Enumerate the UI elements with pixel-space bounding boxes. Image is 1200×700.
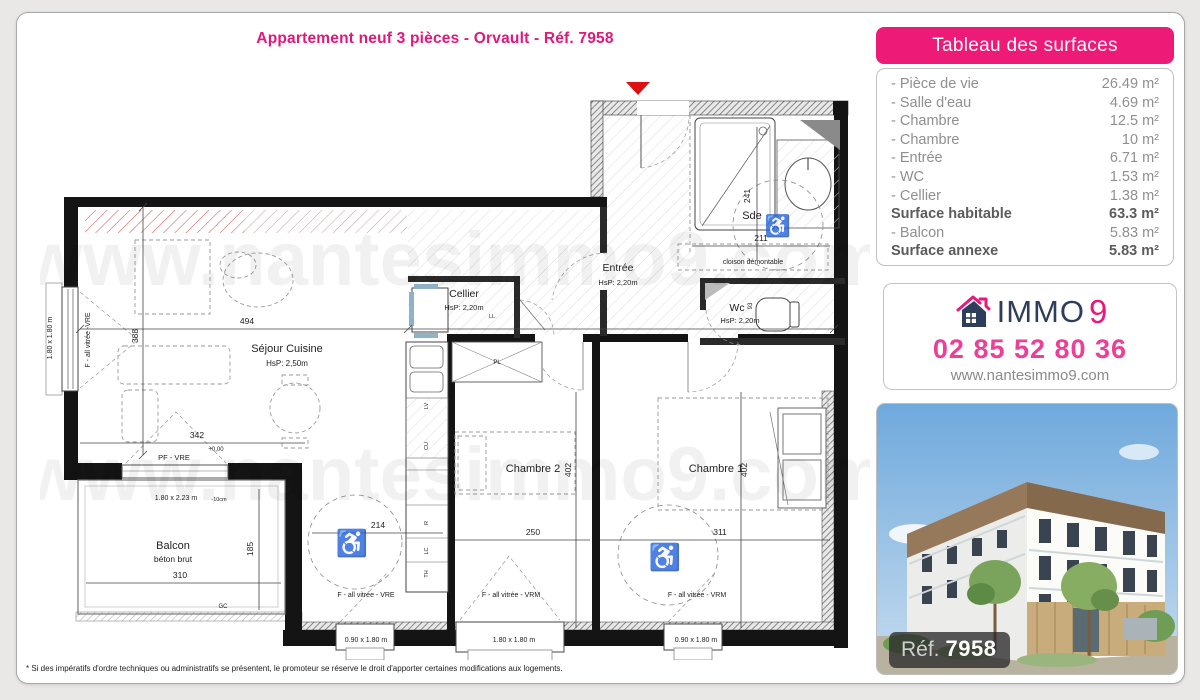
surface-row: Surface annexe5.83 m²: [891, 242, 1159, 261]
plan-label: 402: [563, 463, 573, 477]
plan-label: -10cm: [211, 497, 227, 503]
footnote: * Si des impératifs d'ordre techniques o…: [26, 664, 563, 673]
plan-label: LV: [424, 403, 430, 410]
ref-number: 7958: [946, 636, 997, 661]
floorplan: www.nantesimmo9.comwww.nantesimmo9.comSé…: [40, 70, 870, 660]
house-icon: [953, 293, 993, 331]
plan-label: 402: [739, 463, 749, 477]
plan-label: ♿: [336, 528, 368, 558]
plan-label: 0.90 x 1.80 m: [345, 637, 388, 644]
agency-card: IMMO9 02 85 52 80 36 www.nantesimmo9.com: [883, 283, 1177, 390]
plan-label: 1.80 x 2.23 m: [155, 495, 198, 502]
plan-label: 185: [245, 542, 255, 556]
plan-label: GC: [219, 604, 229, 610]
plan-label: 388: [130, 329, 140, 343]
plan-label: F - all vitrée - VRM: [482, 592, 541, 599]
plan-label: 1.80 x 1.80 m: [47, 317, 54, 360]
plan-label: Chambre 2: [506, 463, 560, 475]
plan-label: HsP: 2,20m: [598, 278, 637, 287]
plan-label: 494: [240, 316, 254, 326]
plan-label: R: [424, 521, 430, 525]
plan-label: HsP: 2,20m: [444, 303, 483, 312]
surface-row: - Chambre12.5 m²: [891, 112, 1159, 131]
plan-label: cloison démontable: [723, 259, 783, 266]
plan-label: 93: [748, 302, 754, 309]
plan-label: +0,00: [208, 447, 224, 453]
surface-table: - Pièce de vie26.49 m²- Salle d'eau4.69 …: [876, 68, 1174, 266]
plan-label: 250: [526, 527, 540, 537]
plan-label: 310: [173, 570, 187, 580]
plan-label: 311: [713, 527, 727, 537]
plan-label: Séjour Cuisine: [251, 343, 323, 355]
plan-label: ♿: [649, 542, 681, 572]
plan-label: HsP: 2,50m: [266, 359, 308, 368]
plan-label: béton brut: [154, 554, 193, 564]
brand-digit: 9: [1089, 293, 1107, 331]
surface-row: - WC1.53 m²: [891, 168, 1159, 187]
agency-logo: IMMO9: [884, 292, 1176, 332]
plan-label: LC: [424, 547, 430, 554]
surface-row: - Cellier1.38 m²: [891, 187, 1159, 206]
entrance-marker-icon: [626, 82, 650, 95]
surface-row: - Balcon5.83 m²: [891, 224, 1159, 243]
plan-label: Entrée: [603, 262, 634, 274]
plan-label: 214: [371, 520, 385, 530]
plan-label: Sde: [742, 210, 762, 222]
surface-row: - Entrée6.71 m²: [891, 149, 1159, 168]
photo-ref-badge: Réf.7958: [889, 632, 1010, 668]
plan-label: 1.80 x 1.80 m: [493, 637, 536, 644]
plan-label: 0.90 x 1.80 m: [675, 637, 718, 644]
surface-row: Surface habitable63.3 m²: [891, 205, 1159, 224]
brand-name: IMMO: [997, 294, 1085, 330]
agency-phone[interactable]: 02 85 52 80 36: [884, 334, 1176, 365]
plan-label: Chambre 1: [689, 463, 743, 475]
plan-label: HsP: 2,20m: [720, 316, 759, 325]
plan-label: Balcon: [156, 540, 190, 552]
surface-rows: - Pièce de vie26.49 m²- Salle d'eau4.69 …: [891, 75, 1159, 261]
surface-row: - Chambre10 m²: [891, 131, 1159, 150]
plan-label: F - all vitrée -VRE: [85, 312, 92, 368]
plan-label: TH: [424, 570, 430, 577]
surface-row: - Salle d'eau4.69 m²: [891, 94, 1159, 113]
plan-label: PF - VRE: [158, 453, 190, 462]
plan-label: PL: [493, 360, 501, 366]
page-title: Appartement neuf 3 pièces - Orvault - Ré…: [40, 30, 830, 48]
plan-label: F - all vitrée - VRM: [668, 592, 727, 599]
building-photo: Réf.7958: [876, 403, 1178, 675]
agency-website[interactable]: www.nantesimmo9.com: [884, 367, 1176, 384]
plan-label: ♿: [765, 213, 791, 238]
ref-label: Réf.: [901, 638, 940, 661]
plan-label: 241: [742, 189, 752, 203]
plan-label: F - all vitrée - VRE: [337, 592, 395, 599]
plan-label: Cellier: [449, 288, 479, 300]
plan-label: Wc: [729, 302, 744, 314]
plan-label: 342: [190, 430, 204, 440]
plan-label: CU: [424, 442, 430, 450]
surface-table-header: Tableau des surfaces: [876, 27, 1174, 64]
plan-label: LL: [489, 314, 495, 320]
surface-row: - Pièce de vie26.49 m²: [891, 75, 1159, 94]
